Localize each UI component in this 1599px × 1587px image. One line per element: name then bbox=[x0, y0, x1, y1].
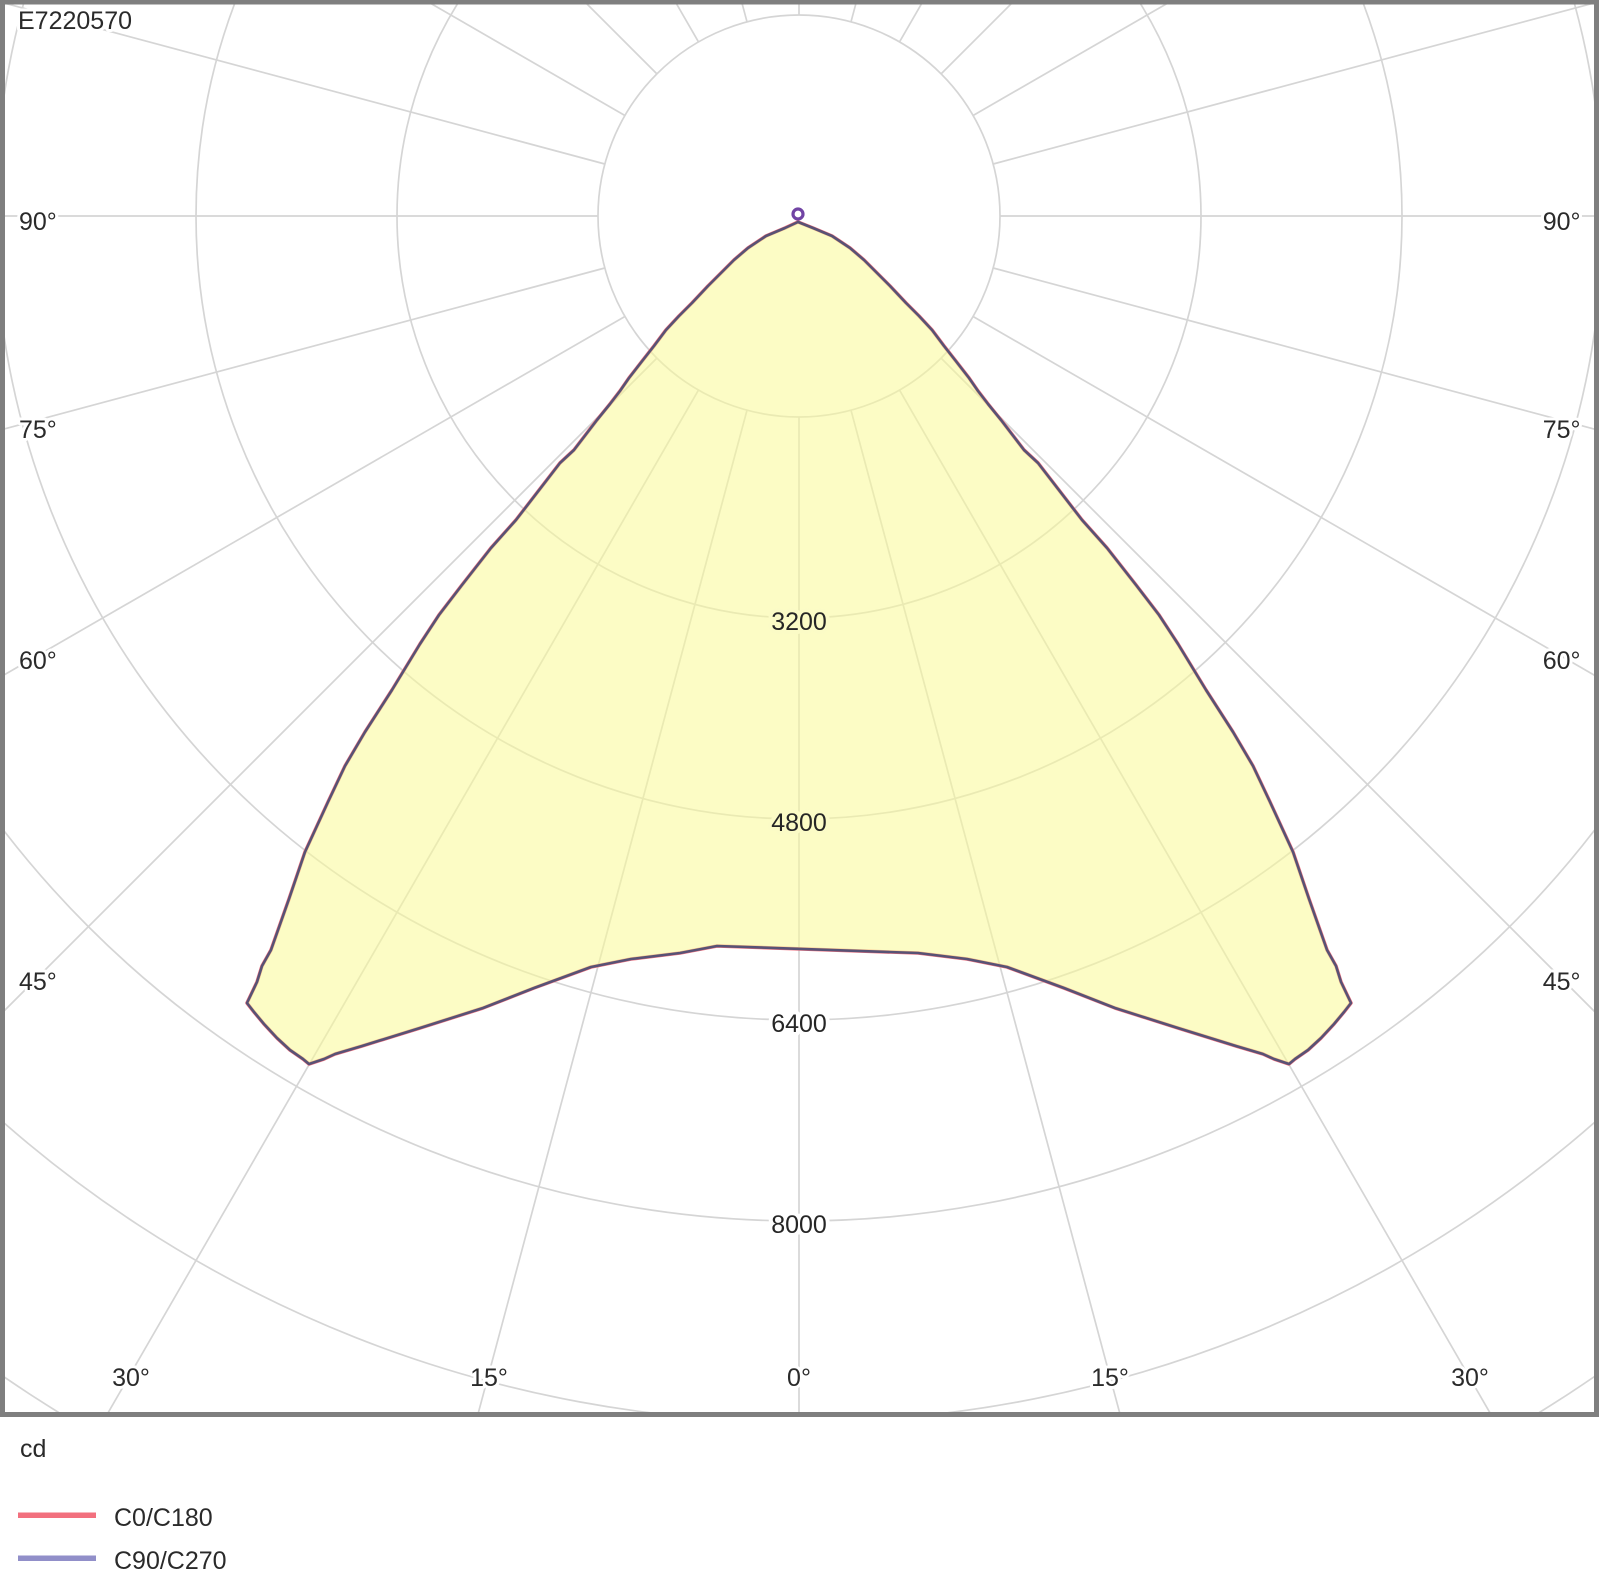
svg-text:C0/C180: C0/C180 bbox=[114, 1504, 213, 1532]
svg-text:8000: 8000 bbox=[771, 1211, 827, 1239]
svg-text:C90/C270: C90/C270 bbox=[114, 1547, 227, 1575]
svg-text:60°: 60° bbox=[19, 647, 57, 675]
svg-text:90°: 90° bbox=[19, 208, 57, 236]
svg-text:30°: 30° bbox=[1451, 1364, 1489, 1392]
svg-text:45°: 45° bbox=[1543, 968, 1581, 996]
svg-text:60°: 60° bbox=[1543, 647, 1581, 675]
svg-text:45°: 45° bbox=[19, 968, 57, 996]
svg-text:75°: 75° bbox=[1543, 416, 1581, 444]
svg-text:E7220570: E7220570 bbox=[18, 7, 132, 35]
svg-text:15°: 15° bbox=[1091, 1364, 1129, 1392]
svg-text:3200: 3200 bbox=[771, 608, 827, 636]
svg-text:30°: 30° bbox=[112, 1364, 150, 1392]
svg-text:6400: 6400 bbox=[771, 1010, 827, 1038]
svg-text:4800: 4800 bbox=[771, 809, 827, 837]
svg-text:90°: 90° bbox=[1543, 208, 1581, 236]
svg-text:75°: 75° bbox=[19, 416, 57, 444]
svg-text:cd: cd bbox=[20, 1435, 46, 1463]
svg-text:0°: 0° bbox=[787, 1364, 811, 1392]
svg-text:15°: 15° bbox=[470, 1364, 508, 1392]
